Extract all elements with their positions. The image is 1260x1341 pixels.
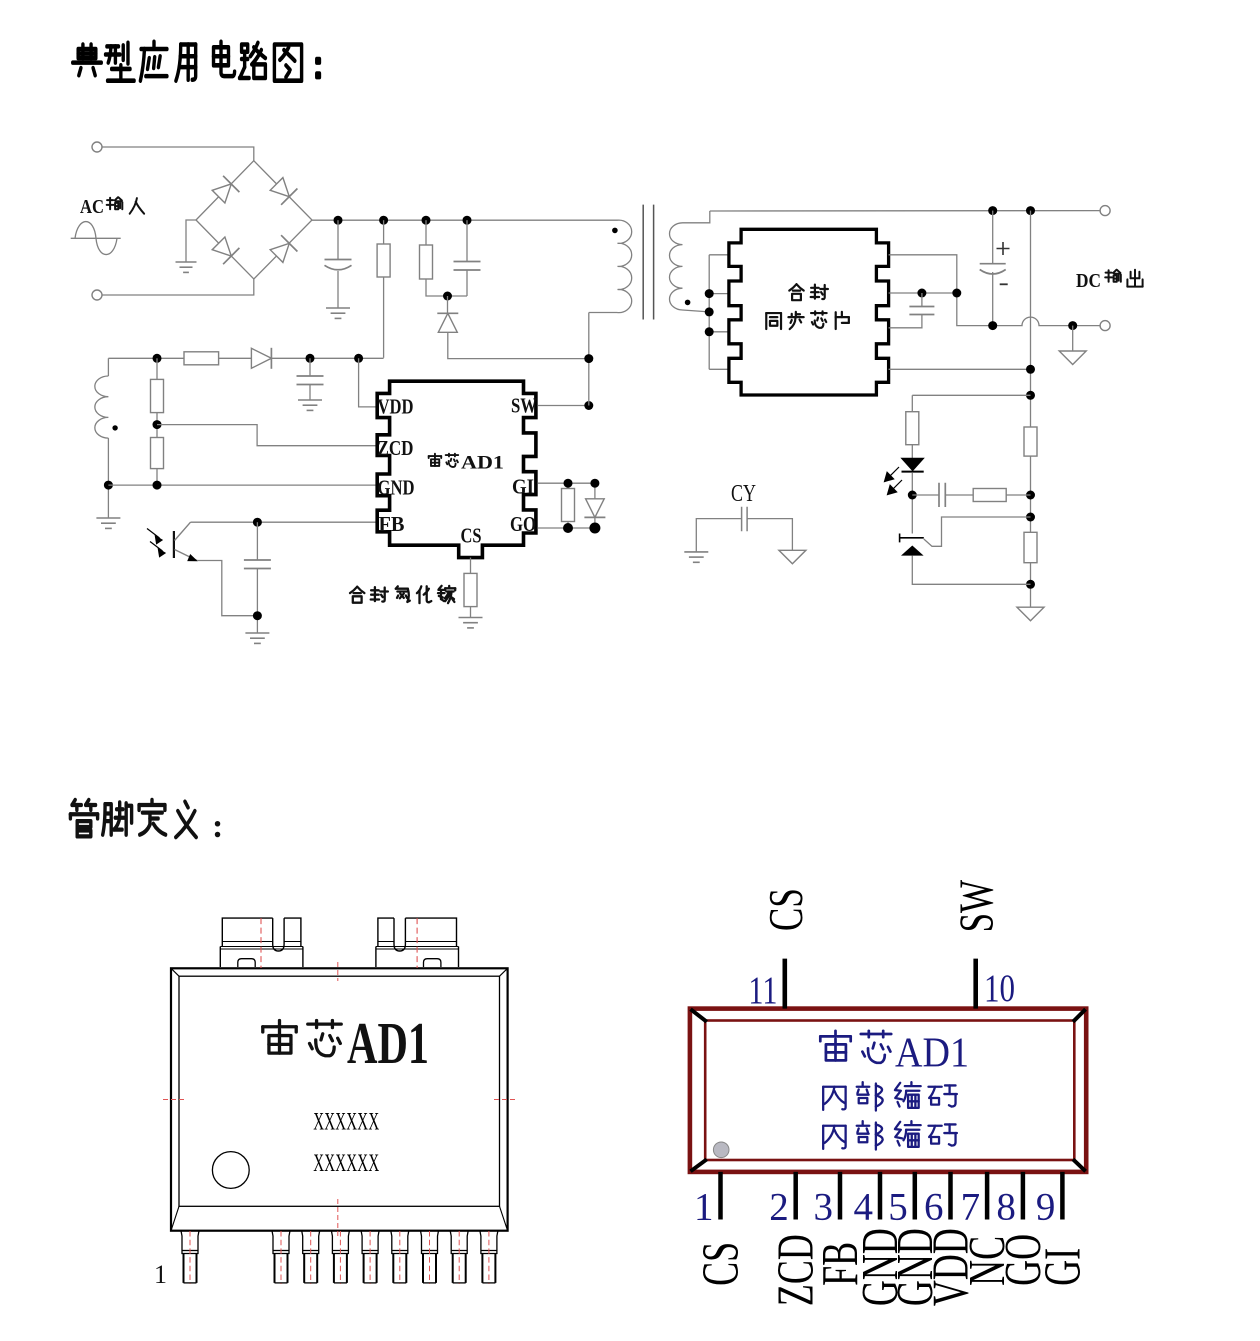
svg-text:10: 10: [984, 967, 1015, 1010]
svg-text:1: 1: [154, 1260, 167, 1289]
svg-text:XXXXXX: XXXXXX: [313, 1106, 379, 1135]
svg-text:2: 2: [769, 1186, 789, 1229]
svg-text:GI: GI: [1033, 1248, 1091, 1286]
svg-text:FB: FB: [379, 512, 405, 536]
svg-text:11: 11: [748, 969, 777, 1012]
svg-text:9: 9: [1036, 1186, 1056, 1229]
svg-text:VDD: VDD: [378, 395, 414, 419]
svg-text:CS: CS: [691, 1242, 749, 1286]
svg-text:AD1: AD1: [895, 1031, 969, 1077]
svg-text:7: 7: [961, 1186, 981, 1229]
svg-text:GI: GI: [512, 475, 534, 499]
svg-text:AD1: AD1: [347, 1010, 429, 1076]
svg-text:3: 3: [814, 1186, 834, 1229]
svg-text:4: 4: [854, 1186, 874, 1229]
svg-text:6: 6: [924, 1186, 944, 1229]
svg-text:XXXXXX: XXXXXX: [313, 1148, 379, 1177]
svg-text:AC: AC: [80, 196, 104, 218]
svg-text:AD1: AD1: [461, 453, 504, 474]
svg-text:CY: CY: [731, 481, 756, 507]
svg-text:CS: CS: [461, 524, 482, 548]
svg-text:SW: SW: [950, 880, 1004, 933]
svg-text:1: 1: [694, 1186, 714, 1229]
svg-text:5: 5: [888, 1186, 908, 1229]
svg-text:SW: SW: [511, 394, 537, 418]
svg-text:DC: DC: [1076, 270, 1101, 292]
svg-text:8: 8: [996, 1186, 1016, 1229]
svg-text:CS: CS: [759, 888, 813, 931]
svg-text::: :: [212, 808, 223, 845]
svg-text:GND: GND: [378, 476, 415, 500]
svg-text:ZCD: ZCD: [378, 436, 414, 460]
svg-text:GO: GO: [510, 512, 536, 536]
